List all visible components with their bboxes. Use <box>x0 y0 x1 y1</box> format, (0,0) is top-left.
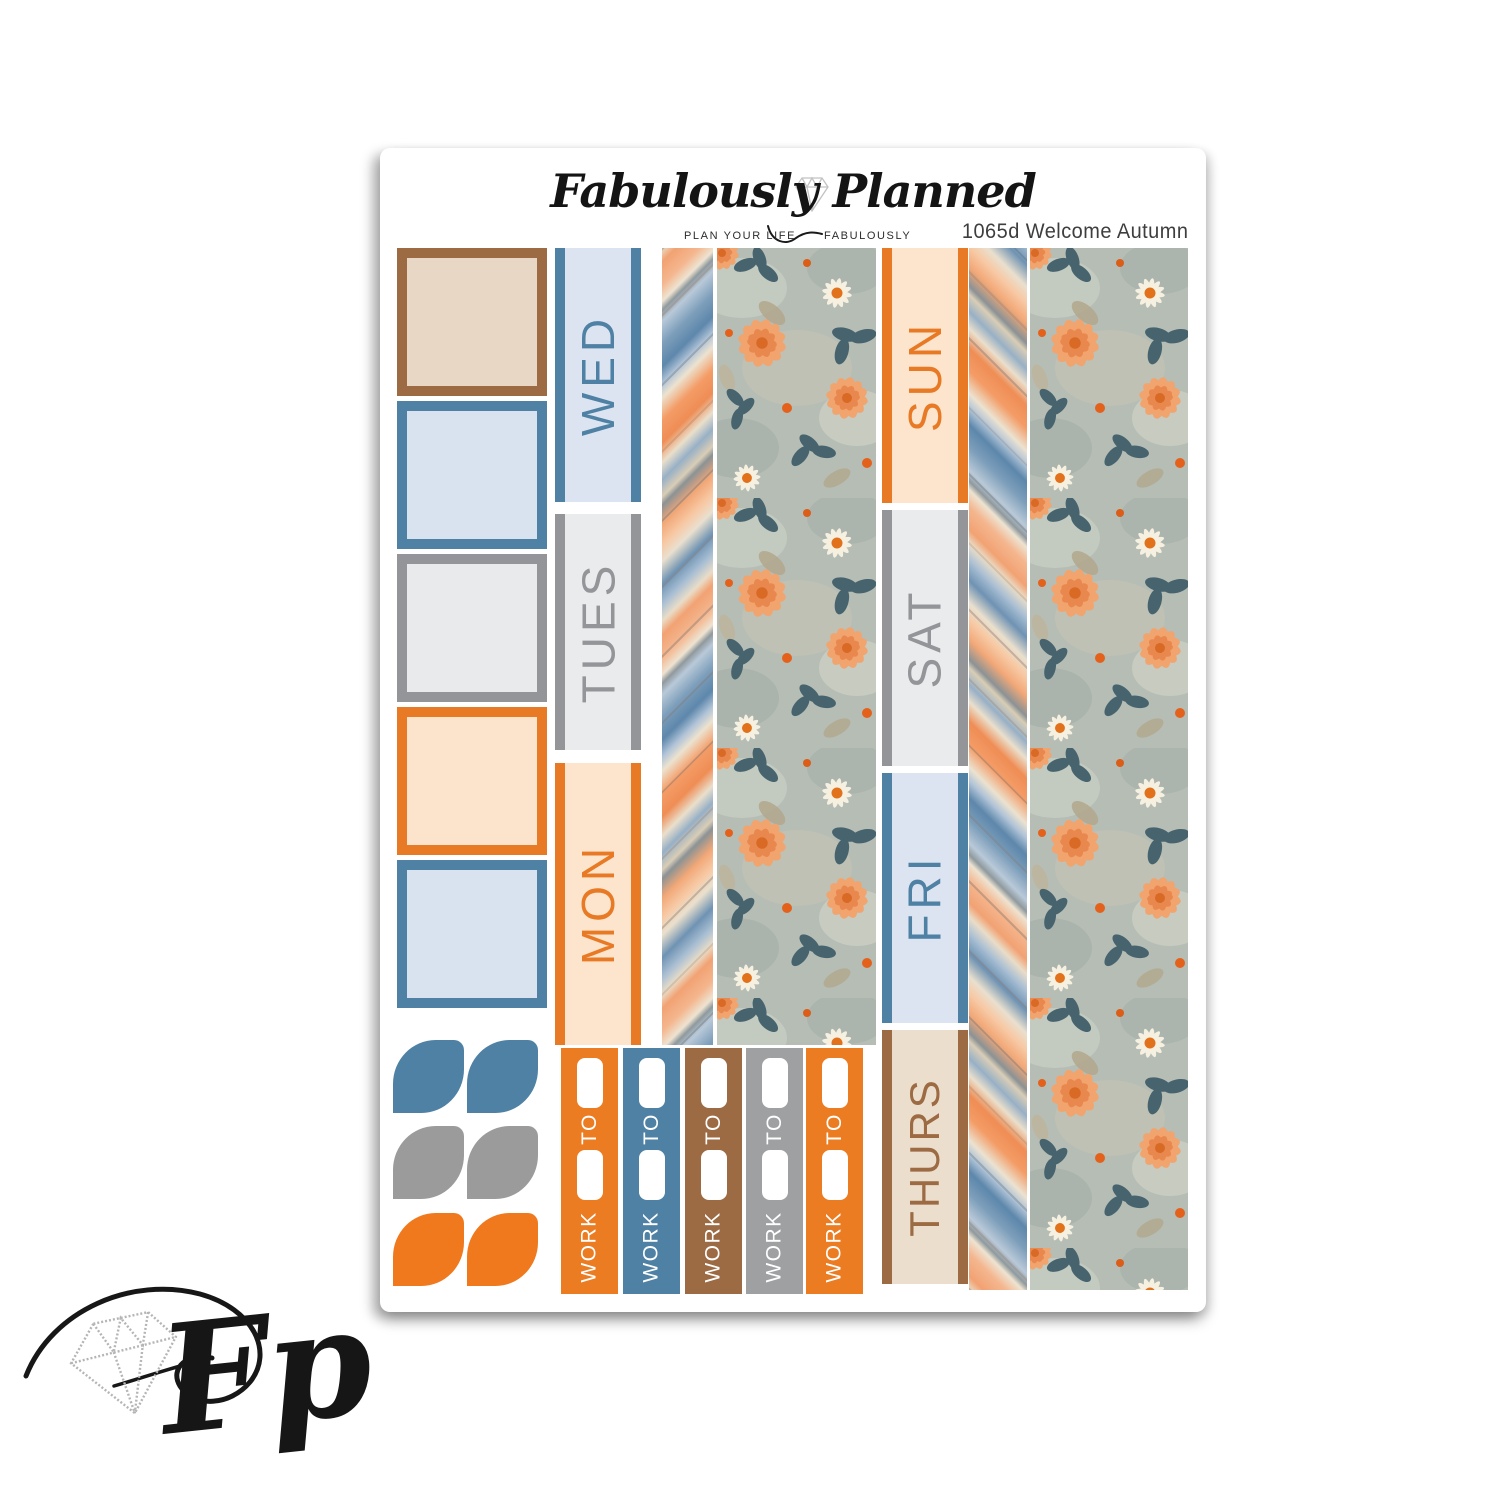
tagline-left: PLAN YOUR LIFE <box>684 230 796 242</box>
petal-sticker-blue-1 <box>393 1040 464 1113</box>
work-to-strip-3: TO WORK <box>685 1048 742 1294</box>
checkbox-blank <box>577 1058 603 1108</box>
work-to-strip-2: TO WORK <box>623 1048 680 1294</box>
day-flag-wed: WED <box>555 248 641 502</box>
day-flag-sun: SUN <box>882 248 968 503</box>
checkbox-blank <box>822 1150 848 1200</box>
day-flag-thurs: THURS <box>882 1030 968 1284</box>
washi-strip-striped-left <box>662 248 713 1045</box>
washi-strip-striped-right <box>969 248 1027 1290</box>
checkbox-blank <box>577 1150 603 1200</box>
checkbox-blank <box>822 1058 848 1108</box>
to-label: TO <box>639 1113 663 1145</box>
tagline-right: FABULOUSLY <box>824 230 911 242</box>
full-box-sticker-5 <box>397 860 547 1008</box>
day-flag-fri: FRI <box>882 773 968 1023</box>
day-flag-sun-label: SUN <box>898 319 952 431</box>
to-label: TO <box>822 1113 846 1145</box>
washi-strip-floral-right <box>1030 248 1188 1290</box>
to-label: TO <box>701 1113 725 1145</box>
watermark-monogram: Fp <box>153 1285 379 1456</box>
checkbox-blank <box>701 1150 727 1200</box>
petal-sticker-gray-2 <box>467 1126 538 1199</box>
checkbox-blank <box>701 1058 727 1108</box>
work-label: WORK <box>823 1211 847 1282</box>
to-label: TO <box>577 1113 601 1145</box>
day-flag-mon-label: MON <box>571 843 625 965</box>
to-label: TO <box>762 1113 786 1145</box>
product-mockup-page: { "header": { "brand_script": "Fabulousl… <box>0 0 1500 1500</box>
full-box-sticker-4 <box>397 707 547 855</box>
sticker-sheet: Fabulously Planned PLAN YOUR LIFE FABULO… <box>380 148 1206 1312</box>
brand-logo-script: Fabulously Planned <box>380 164 1206 218</box>
checkbox-blank <box>762 1150 788 1200</box>
full-box-sticker-1 <box>397 248 547 396</box>
checkbox-blank <box>639 1058 665 1108</box>
checkbox-blank <box>639 1150 665 1200</box>
brand-watermark: Fp <box>22 1268 322 1498</box>
petal-sticker-gray-1 <box>393 1126 464 1199</box>
petal-sticker-orange-1 <box>393 1213 464 1286</box>
work-to-strip-1: TO WORK <box>561 1048 618 1294</box>
day-flag-wed-label: WED <box>571 314 625 436</box>
day-flag-thurs-label: THURS <box>901 1077 949 1237</box>
washi-strip-floral-left <box>717 248 876 1045</box>
work-to-strip-4: TO WORK <box>746 1048 803 1294</box>
day-flag-mon: MON <box>555 763 641 1045</box>
day-flag-tues: TUES <box>555 514 641 750</box>
petal-sticker-orange-2 <box>467 1213 538 1286</box>
work-label: WORK <box>763 1211 787 1282</box>
full-box-sticker-3 <box>397 554 547 702</box>
day-flag-sat: SAT <box>882 510 968 766</box>
day-flag-tues-label: TUES <box>571 561 625 704</box>
petal-sticker-blue-2 <box>467 1040 538 1113</box>
work-label: WORK <box>702 1211 726 1282</box>
checkbox-blank <box>762 1058 788 1108</box>
work-label: WORK <box>640 1211 664 1282</box>
full-box-sticker-2 <box>397 401 547 549</box>
work-label: WORK <box>578 1211 602 1282</box>
day-flag-fri-label: FRI <box>898 853 952 942</box>
product-code: 1065d Welcome Autumn <box>961 220 1188 244</box>
day-flag-sat-label: SAT <box>898 587 952 688</box>
work-to-strip-5: TO WORK <box>806 1048 863 1294</box>
